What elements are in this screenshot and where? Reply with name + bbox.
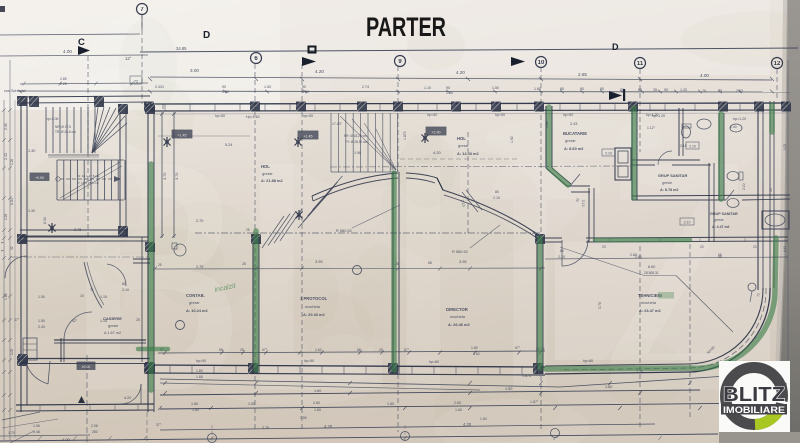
svg-text:25: 25 [379, 348, 383, 352]
svg-text:YY: Ø 28.30 cm: YY: Ø 28.30 cm [345, 140, 368, 144]
svg-text:2.43: 2.43 [570, 122, 577, 126]
svg-text:1.05: 1.05 [10, 349, 14, 355]
svg-text:1.60: 1.60 [473, 352, 480, 356]
svg-text:1.80: 1.80 [4, 293, 8, 300]
svg-text:gresie: gresie [458, 143, 469, 148]
svg-text:±0.00: ±0.00 [82, 365, 91, 369]
svg-text:2.10: 2.10 [605, 152, 612, 156]
svg-text:90: 90 [664, 88, 668, 92]
svg-text:2.85: 2.85 [60, 77, 67, 81]
svg-text:12: 12 [774, 61, 781, 67]
svg-text:T: 15 × 28.6 cm: T: 15 × 28.6 cm [78, 181, 99, 185]
svg-text:37°: 37° [156, 423, 162, 427]
svg-text:R 580.52: R 580.52 [452, 249, 468, 254]
svg-text:4.20: 4.20 [124, 396, 131, 400]
svg-text:1.81: 1.81 [545, 121, 549, 128]
svg-text:1.96: 1.96 [354, 151, 361, 155]
svg-text:8.42: 8.42 [783, 246, 787, 252]
svg-text:4.20: 4.20 [433, 150, 442, 155]
svg-text:2.10: 2.10 [122, 288, 129, 292]
svg-text:cos Schiedel: cos Schiedel [4, 89, 26, 93]
svg-text:NR: Ø 17.5: NR: Ø 17.5 [55, 125, 71, 129]
svg-text:35: 35 [653, 88, 657, 92]
svg-text:2.43: 2.43 [4, 153, 8, 160]
svg-text:2.60: 2.60 [313, 401, 320, 405]
svg-text:Hp=1.82: Hp=1.82 [246, 115, 260, 119]
svg-text:2.60: 2.60 [315, 348, 322, 352]
svg-text:4.00: 4.00 [62, 437, 71, 442]
svg-text:1.50: 1.50 [38, 295, 45, 299]
svg-text:4.00: 4.00 [63, 49, 72, 54]
svg-text:2.28: 2.28 [4, 214, 8, 220]
svg-text:10: 10 [538, 60, 545, 66]
svg-text:GRUP SANITAR: GRUP SANITAR [710, 212, 738, 216]
svg-text:HOL: HOL [457, 136, 466, 141]
svg-text:+1.45: +1.45 [303, 135, 312, 139]
svg-text:67°: 67° [262, 348, 268, 352]
svg-text:+2.90: +2.90 [431, 131, 440, 135]
svg-text:2.75: 2.75 [196, 265, 203, 269]
svg-text:3.75: 3.75 [74, 228, 81, 232]
svg-text:N: 16 × 17.5 cm: N: 16 × 17.5 cm [78, 174, 100, 178]
svg-text:1.80: 1.80 [196, 369, 203, 373]
svg-text:hp=50: hp=50 [563, 113, 573, 117]
svg-text:IMOBILIARE: IMOBILIARE [723, 405, 785, 415]
svg-text:1.80: 1.80 [605, 385, 612, 389]
svg-text:1.02: 1.02 [783, 144, 787, 150]
svg-text:gresie: gresie [565, 138, 576, 143]
svg-text:2.10: 2.10 [493, 196, 500, 200]
svg-text:1.06: 1.06 [33, 424, 40, 428]
svg-text:58: 58 [428, 261, 432, 265]
svg-text:hp=50: hp=50 [304, 359, 314, 363]
svg-text:75: 75 [718, 89, 722, 93]
svg-text:1.50: 1.50 [492, 86, 499, 90]
svg-text:67°: 67° [404, 348, 410, 352]
svg-text:hp=50: hp=50 [196, 359, 206, 363]
svg-text:2.70: 2.70 [196, 219, 203, 223]
svg-text:23: 23 [602, 245, 606, 249]
svg-text:mocheta: mocheta [641, 300, 657, 305]
svg-text:1.875: 1.875 [522, 374, 531, 378]
svg-text:80: 80 [122, 282, 126, 286]
svg-text:3.00: 3.00 [190, 68, 199, 73]
svg-text:2.46: 2.46 [33, 430, 40, 434]
svg-text:hp=50: hp=50 [427, 113, 437, 117]
svg-text:6.60: 6.60 [648, 265, 655, 269]
svg-text:90: 90 [302, 85, 306, 89]
svg-text:1.12°: 1.12° [647, 126, 656, 130]
svg-text:6.84: 6.84 [10, 198, 14, 205]
svg-text:TR: Ø 28.6 cm: TR: Ø 28.6 cm [55, 130, 76, 134]
svg-text:GRUP SANITAR: GRUP SANITAR [658, 173, 687, 178]
svg-text:25: 25 [240, 348, 244, 352]
svg-text:+0.90: +0.90 [35, 176, 44, 180]
svg-text:3.70: 3.70 [175, 173, 179, 180]
svg-text:25: 25 [242, 262, 246, 266]
svg-text:3.95: 3.95 [315, 259, 323, 264]
svg-text:4.00: 4.00 [700, 73, 709, 78]
svg-text:A 1.67 m2: A 1.67 m2 [104, 331, 121, 335]
svg-text:A: 26.46 m2: A: 26.46 m2 [448, 322, 470, 327]
svg-text:A: 14.43 m2: A: 14.43 m2 [457, 151, 479, 156]
svg-text:A: 4.47 m2: A: 4.47 m2 [712, 225, 730, 229]
svg-text:1.87°: 1.87° [530, 400, 539, 404]
svg-text:1.66: 1.66 [196, 375, 203, 379]
svg-text:NR: Ø 18.25 cm: NR: Ø 18.25 cm [344, 134, 367, 138]
svg-text:hp=2.06: hp=2.06 [46, 117, 58, 121]
svg-text:8.34: 8.34 [43, 217, 47, 224]
svg-text:mocheta: mocheta [450, 314, 466, 319]
svg-text:1.20: 1.20 [680, 88, 687, 92]
svg-text:hp=1.20: hp=1.20 [733, 117, 746, 121]
svg-text:28.508.31: 28.508.31 [644, 271, 659, 275]
svg-text:gresie: gresie [189, 300, 200, 305]
svg-text:2.06: 2.06 [91, 424, 98, 428]
svg-text:1.60: 1.60 [455, 408, 462, 412]
svg-text:1.15: 1.15 [100, 295, 107, 299]
svg-text:2.10: 2.10 [558, 255, 565, 259]
svg-text:PARTER: PARTER [366, 12, 446, 42]
svg-text:70: 70 [702, 89, 706, 93]
svg-text:gresie: gresie [714, 218, 724, 222]
svg-text:A: 8.60 m2: A: 8.60 m2 [564, 146, 584, 151]
svg-text:A: 8.78 m2: A: 8.78 m2 [660, 188, 678, 192]
svg-text:40: 40 [769, 188, 773, 192]
svg-text:gresie: gresie [262, 171, 273, 176]
svg-text:1.15: 1.15 [100, 319, 107, 323]
svg-text:17.40°: 17.40° [332, 122, 342, 126]
svg-text:12°: 12° [125, 56, 132, 61]
svg-text:4.20: 4.20 [315, 69, 324, 74]
svg-text:DIRECTOR: DIRECTOR [446, 307, 468, 312]
svg-text:2.60: 2.60 [454, 401, 461, 405]
svg-text:1.60: 1.60 [314, 389, 321, 393]
svg-text:25: 25 [390, 167, 394, 171]
svg-text:1.80: 1.80 [191, 402, 198, 406]
svg-text:25: 25 [158, 263, 162, 267]
svg-text:gresie: gresie [662, 181, 672, 185]
svg-text:A: 20.43 m2: A: 20.43 m2 [303, 312, 325, 317]
svg-text:1.80: 1.80 [387, 402, 394, 406]
svg-text:2.10: 2.10 [742, 183, 746, 190]
svg-text:3.70: 3.70 [598, 302, 602, 309]
svg-text:3.95: 3.95 [459, 259, 467, 264]
svg-text:A: 10.24 m2: A: 10.24 m2 [186, 308, 208, 313]
svg-text:1.60: 1.60 [192, 408, 199, 412]
svg-text:4.20: 4.20 [463, 422, 472, 427]
svg-text:25: 25 [136, 318, 140, 322]
svg-text:1.873: 1.873 [403, 131, 407, 140]
svg-text:A: 23.47 m2: A: 23.47 m2 [639, 308, 661, 313]
svg-text:BUCATARIE: BUCATARIE [563, 131, 587, 136]
svg-text:80: 80 [560, 249, 564, 253]
svg-text:1.50: 1.50 [480, 417, 487, 421]
svg-text:HOL: HOL [261, 164, 270, 169]
svg-text:C: C [78, 37, 85, 48]
svg-text:42°: 42° [72, 319, 78, 323]
svg-text:2.43: 2.43 [4, 123, 8, 130]
svg-text:2.431: 2.431 [155, 85, 164, 89]
svg-text:+1.45: +1.45 [177, 134, 186, 138]
svg-text:1.10: 1.10 [424, 86, 431, 90]
svg-text:58: 58 [219, 348, 223, 352]
svg-text:10: 10 [80, 294, 84, 298]
svg-text:hp=50: hp=50 [495, 113, 505, 117]
svg-text:4.20: 4.20 [324, 424, 333, 429]
svg-text:mocheta: mocheta [305, 304, 321, 309]
svg-text:1.30: 1.30 [28, 209, 35, 213]
svg-text:gresie: gresie [108, 324, 118, 328]
svg-text:2.10: 2.10 [581, 200, 585, 207]
svg-text:BLITZ: BLITZ [723, 384, 785, 406]
svg-text:1.80: 1.80 [471, 346, 478, 350]
svg-text:4.20: 4.20 [456, 70, 465, 75]
svg-text:D: D [203, 30, 210, 41]
svg-text:2.76: 2.76 [636, 370, 643, 374]
svg-text:2.10: 2.10 [680, 144, 687, 148]
svg-text:hp=50: hp=50 [215, 114, 225, 118]
svg-text:D: D [612, 42, 619, 52]
svg-text:2.10: 2.10 [684, 221, 691, 225]
svg-text:1.92: 1.92 [510, 136, 514, 143]
svg-text:11: 11 [637, 61, 644, 67]
svg-text:CONTAB.: CONTAB. [186, 293, 205, 298]
svg-text:hp=1.20: hp=1.20 [646, 113, 658, 117]
svg-text:2.85: 2.85 [578, 72, 587, 77]
svg-text:A: 21.88 m2: A: 21.88 m2 [261, 178, 283, 183]
svg-text:23: 23 [700, 245, 704, 249]
svg-text:3.75: 3.75 [262, 426, 269, 430]
svg-text:2.06: 2.06 [300, 416, 307, 420]
svg-text:1.20: 1.20 [10, 159, 14, 165]
svg-text:5.24: 5.24 [225, 143, 232, 147]
svg-text:1.30: 1.30 [28, 149, 35, 153]
svg-text:34.85: 34.85 [176, 46, 187, 51]
svg-text:1.50: 1.50 [505, 387, 512, 391]
svg-text:32: 32 [10, 246, 14, 250]
svg-text:1.50: 1.50 [38, 319, 45, 323]
svg-text:2.74: 2.74 [362, 85, 369, 89]
svg-text:67°: 67° [515, 346, 521, 350]
svg-text:1.50: 1.50 [248, 402, 255, 406]
svg-text:1.70: 1.70 [8, 431, 15, 435]
svg-text:hp=80: hp=80 [583, 359, 593, 363]
svg-text:25: 25 [395, 262, 399, 266]
svg-text:2.10: 2.10 [689, 145, 696, 149]
svg-text:2.40: 2.40 [38, 325, 45, 329]
svg-text:2.60: 2.60 [630, 253, 637, 257]
svg-text:hp=80: hp=80 [429, 360, 439, 364]
svg-text:1.60: 1.60 [314, 408, 321, 412]
svg-text:23: 23 [753, 245, 757, 249]
svg-text:70: 70 [575, 198, 579, 202]
svg-text:80: 80 [495, 190, 499, 194]
svg-text:3.70: 3.70 [163, 173, 167, 180]
svg-text:1.50: 1.50 [264, 85, 271, 89]
svg-text:1 PROTOCOL: 1 PROTOCOL [300, 296, 328, 301]
svg-text:90: 90 [222, 85, 226, 89]
svg-text:68: 68 [718, 253, 722, 257]
svg-text:250: 250 [92, 430, 98, 434]
svg-text:25: 25 [246, 228, 250, 232]
svg-text:68: 68 [357, 348, 361, 352]
svg-text:90: 90 [446, 86, 450, 90]
svg-text:hp=50: hp=50 [303, 114, 313, 118]
svg-text:80: 80 [638, 88, 642, 92]
svg-text:R 580.52: R 580.52 [336, 228, 352, 233]
